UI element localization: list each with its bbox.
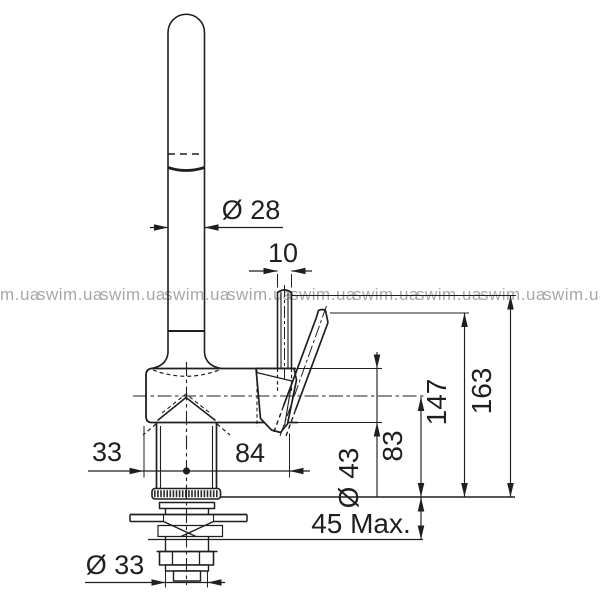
flange-wing-inner <box>164 515 214 522</box>
dim-label-forward-offset: 84 <box>235 438 265 468</box>
dim-label-total-height: 163 <box>466 368 497 415</box>
arrow <box>290 468 304 475</box>
watermark-text: swim.ua <box>290 285 356 304</box>
watermark-text: swim.ua <box>100 285 166 304</box>
dim-label-axis-height: 83 <box>377 430 408 461</box>
spray-head-joint <box>168 168 205 171</box>
watermark-text: swim.ua <box>164 285 230 304</box>
dim-label-handle-height: 147 <box>421 379 452 426</box>
flange-skirt-right <box>181 522 214 537</box>
arrow <box>418 483 425 497</box>
arrow <box>130 468 144 475</box>
corner-dash-left <box>143 424 156 435</box>
arrow <box>154 224 168 231</box>
dim-label-rear-offset: 33 <box>92 437 122 467</box>
arrow <box>461 313 468 327</box>
drawing-canvas: swim.ua swim.ua swim.ua swim.ua swim.ua … <box>0 0 600 600</box>
fillet-right <box>205 353 222 369</box>
flange-boss <box>158 526 223 537</box>
watermark-text: swim.ua <box>0 285 40 304</box>
arrow <box>205 224 219 231</box>
arrow <box>418 498 425 512</box>
arrow <box>264 268 278 275</box>
arrow <box>208 579 222 586</box>
watermark-text: swim.ua <box>353 285 419 304</box>
watermark-text: swim.ua <box>543 285 600 304</box>
dimension-origin-dot <box>183 467 190 474</box>
arrow <box>461 483 468 497</box>
faucet-dimension-drawing: swim.ua swim.ua swim.ua swim.ua swim.ua … <box>0 0 600 600</box>
watermark-text: swim.ua <box>480 285 546 304</box>
dim-label-pin-diameter: 10 <box>268 238 298 268</box>
arrow <box>152 579 166 586</box>
dim-label-spout-diameter: Ø 28 <box>222 195 281 225</box>
dim-label-countertop-max: 45 Max. <box>311 508 411 539</box>
arrow <box>292 268 306 275</box>
flange-edges <box>130 515 247 522</box>
flange-skirt-left <box>164 522 197 537</box>
watermark-text: swim.ua <box>37 285 103 304</box>
dim-label-shank-diameter: Ø 33 <box>86 550 145 580</box>
arrow <box>507 483 514 497</box>
arrow <box>418 526 425 540</box>
watermark-text: swim.ua <box>416 285 482 304</box>
lever-right-edge <box>296 323 329 411</box>
lever-tip <box>316 310 328 323</box>
fillet-left <box>151 353 168 369</box>
arrow <box>374 355 381 369</box>
corner-dash-right <box>217 424 230 435</box>
dim-label-body-diameter: Ø 43 <box>333 448 364 509</box>
watermark-text: swim.ua <box>227 285 293 304</box>
